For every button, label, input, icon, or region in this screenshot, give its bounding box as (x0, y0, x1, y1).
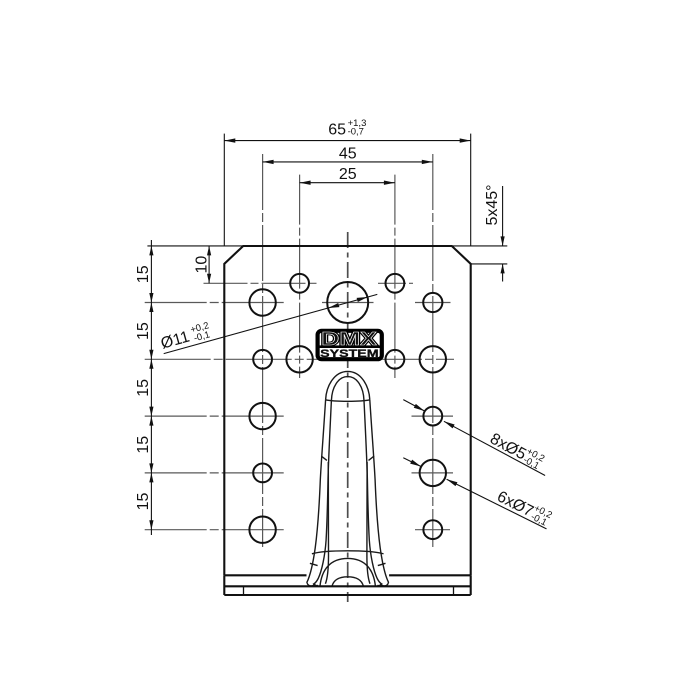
svg-text:-0,7: -0,7 (348, 127, 364, 138)
svg-text:5x45°: 5x45° (484, 184, 501, 225)
svg-text:15: 15 (135, 379, 152, 397)
svg-text:45: 45 (339, 146, 357, 163)
svg-text:25: 25 (339, 166, 357, 183)
svg-text:15: 15 (135, 322, 152, 340)
svg-text:15: 15 (135, 493, 152, 511)
svg-text:10: 10 (193, 256, 210, 274)
svg-text:15: 15 (135, 436, 152, 454)
svg-text:SYSTEM: SYSTEM (320, 348, 378, 360)
svg-text:15: 15 (135, 265, 152, 283)
svg-text:DMX: DMX (321, 328, 377, 349)
svg-text:65: 65 (328, 121, 346, 138)
